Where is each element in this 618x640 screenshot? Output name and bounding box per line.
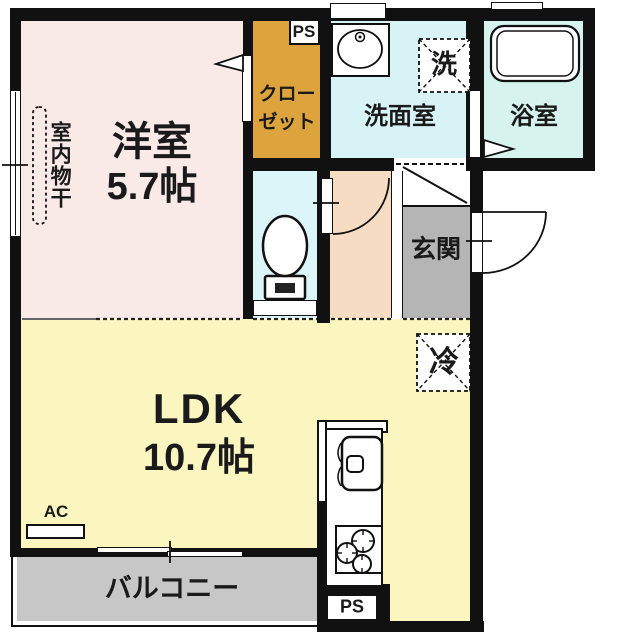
window-above-sink: [330, 3, 386, 19]
window-western-left-rail: [15, 92, 17, 235]
toilet-door-band: [253, 300, 317, 316]
ldk-name: LDK: [153, 385, 245, 433]
bathroom-area: [484, 21, 583, 158]
western-room-name: 洋室: [112, 119, 192, 165]
ac-label: AC: [44, 502, 69, 522]
toilet-room: [253, 171, 317, 318]
door-leaf-toilet: [321, 178, 333, 234]
ldk-size: 10.7帖: [143, 437, 255, 481]
door-leaf-bathroom: [469, 90, 481, 158]
hallway: [330, 171, 391, 318]
vent-bathroom-top: [491, 2, 543, 10]
wall-washroom-left: [320, 8, 331, 171]
door-arc-entrance: [483, 212, 546, 273]
balcony-label: バルコニー: [105, 573, 239, 604]
entrance-step-strip: [391, 171, 403, 318]
ldk-area: [21, 319, 470, 549]
ac-unit-box: [26, 524, 85, 539]
western-room-size: 5.7帖: [107, 166, 198, 210]
wall-bathroom-bottom: [466, 158, 595, 171]
pipe-space-bottom-label: PS: [340, 597, 364, 618]
washing-machine-label: 洗: [431, 50, 457, 80]
washroom-label: 洗面室: [364, 103, 436, 131]
floor-plan: 洋室 5.7帖 室内物干 クロー ゼット PS 洗面室 洗 浴室 玄関 冷 LD…: [0, 0, 618, 640]
bathroom-label: 浴室: [510, 103, 558, 131]
washroom-area: [331, 21, 466, 158]
wall-washroom-bottom: [331, 158, 394, 171]
entrance-label: 玄関: [411, 236, 461, 265]
entrance-upper-zone: [403, 158, 470, 205]
pipe-space-top-label: PS: [293, 22, 316, 42]
sliding-window-left-pane: [97, 547, 172, 553]
indoor-drying-label: 室内物干: [47, 121, 71, 209]
refrigerator-label: 冷: [429, 346, 459, 381]
door-leaf-western: [242, 55, 252, 122]
closet-label-line2: ゼット: [258, 112, 315, 134]
wall-bottom-right: [317, 621, 484, 632]
sliding-window-right-pane: [167, 551, 243, 557]
door-leaf-entrance: [471, 212, 483, 273]
wall-right-bathroom: [583, 8, 595, 171]
kitchen-counter-body: [325, 428, 383, 587]
closet-label-line1: クロー: [258, 84, 315, 106]
